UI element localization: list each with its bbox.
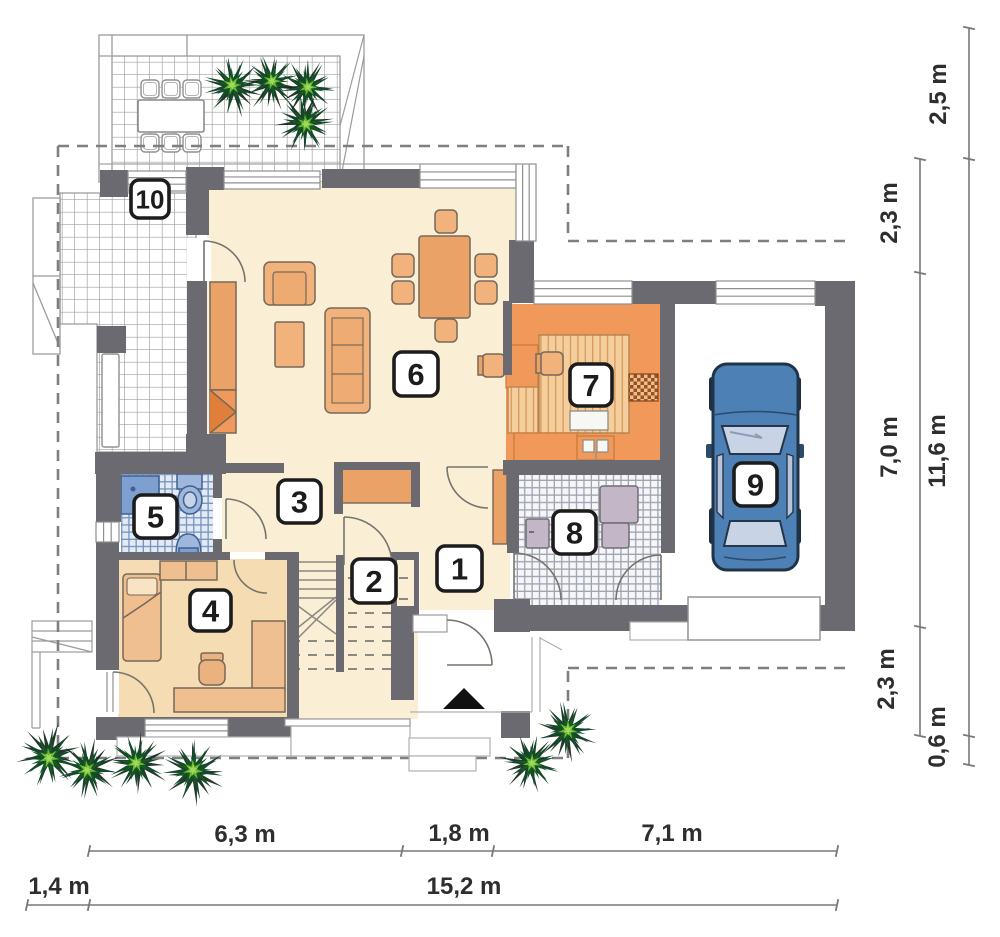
svg-text:15,2 m: 15,2 m bbox=[427, 873, 502, 900]
svg-text:1,4 m: 1,4 m bbox=[28, 873, 89, 900]
svg-text:7,0 m: 7,0 m bbox=[876, 416, 903, 477]
svg-text:2,5 m: 2,5 m bbox=[925, 63, 952, 124]
svg-text:6: 6 bbox=[407, 357, 424, 392]
svg-text:6,3 m: 6,3 m bbox=[214, 821, 275, 848]
svg-text:11,6 m: 11,6 m bbox=[924, 414, 951, 487]
svg-text:5: 5 bbox=[147, 500, 164, 535]
svg-text:8: 8 bbox=[566, 516, 583, 551]
svg-text:1: 1 bbox=[451, 552, 468, 587]
svg-text:7,1 m: 7,1 m bbox=[641, 820, 702, 847]
svg-text:1,8 m: 1,8 m bbox=[428, 820, 489, 847]
svg-text:0,6 m: 0,6 m bbox=[924, 706, 951, 767]
svg-text:3: 3 bbox=[291, 485, 308, 520]
svg-text:4: 4 bbox=[202, 594, 220, 629]
svg-text:2,3 m: 2,3 m bbox=[873, 648, 900, 709]
svg-text:2,3 m: 2,3 m bbox=[876, 182, 903, 243]
svg-text:10: 10 bbox=[136, 184, 165, 214]
svg-text:2: 2 bbox=[365, 564, 382, 599]
svg-text:9: 9 bbox=[747, 468, 764, 503]
svg-text:7: 7 bbox=[582, 368, 599, 403]
